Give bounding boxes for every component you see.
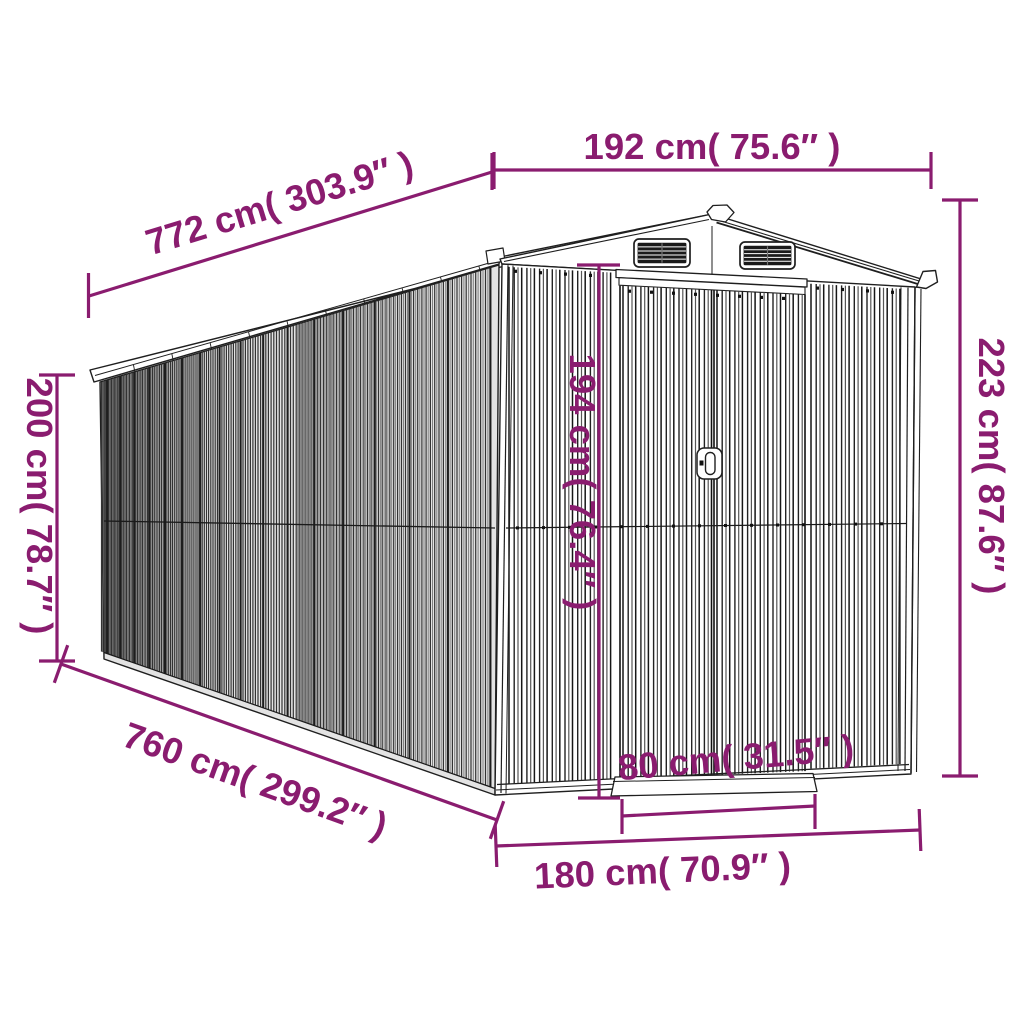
svg-text:192 cm( 75.6″ ): 192 cm( 75.6″ ) [584, 126, 841, 167]
svg-text:772 cm( 303.9″ ): 772 cm( 303.9″ ) [141, 143, 418, 263]
svg-text:194 cm( 76.4″ ): 194 cm( 76.4″ ) [562, 354, 603, 611]
svg-text:180 cm( 70.9″ ): 180 cm( 70.9″ ) [533, 844, 791, 896]
svg-text:223 cm( 87.6″ ): 223 cm( 87.6″ ) [971, 338, 1012, 595]
svg-text:200 cm( 78.7″ ): 200 cm( 78.7″ ) [19, 378, 60, 635]
